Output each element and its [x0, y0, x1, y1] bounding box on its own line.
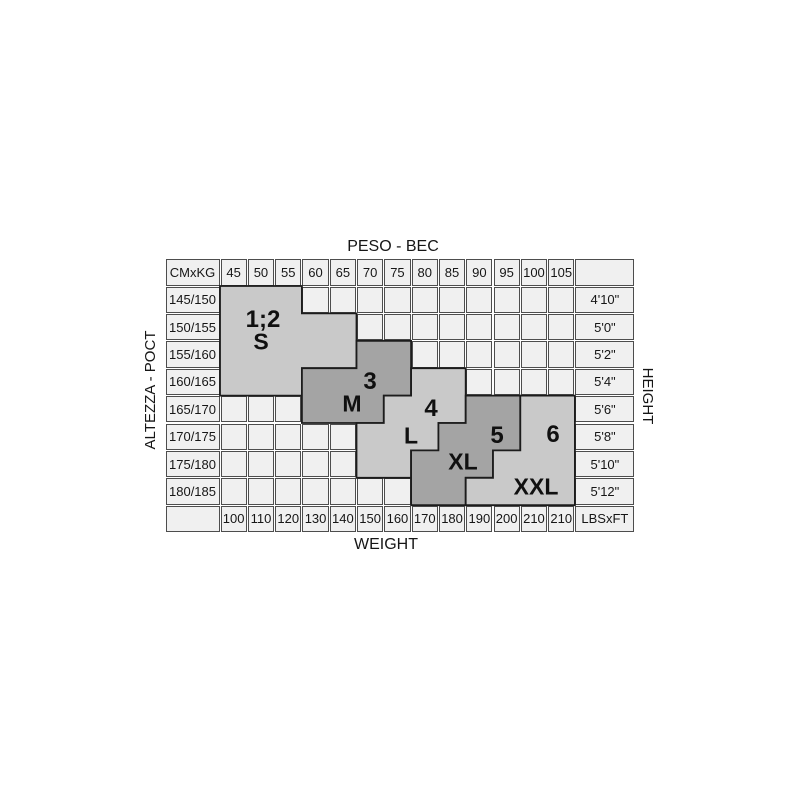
- ft-row-label: 5'0": [575, 314, 634, 340]
- lbs-footer-cell: 120: [275, 506, 301, 532]
- cm-row-label: 175/180: [166, 451, 220, 477]
- grid-cell: [330, 314, 356, 340]
- size-label-s: S: [253, 331, 268, 354]
- grid-cell: [412, 451, 438, 477]
- grid-cell: [466, 424, 492, 450]
- size-label-4: 4: [424, 397, 437, 421]
- grid-cell: [357, 451, 383, 477]
- grid-cell: [248, 424, 274, 450]
- grid-cell: [275, 341, 301, 367]
- grid-cell: [275, 424, 301, 450]
- grid-cell: [330, 451, 356, 477]
- size-label-m: M: [342, 393, 361, 416]
- lbs-footer-cell: 190: [466, 506, 492, 532]
- grid-cell: [521, 341, 547, 367]
- size-label-3: 3: [363, 370, 376, 394]
- lbs-footer-cell: 180: [439, 506, 465, 532]
- grid-cell: [330, 478, 356, 504]
- kg-header-cell: 60: [302, 259, 328, 286]
- grid-cell: [412, 369, 438, 395]
- grid-cell: [494, 341, 520, 367]
- kg-header-cell: 50: [248, 259, 274, 286]
- grid-cell: [521, 396, 547, 422]
- lbs-footer-cell: 210: [521, 506, 547, 532]
- kg-header-cell: 65: [330, 259, 356, 286]
- grid-cell: [357, 287, 383, 313]
- top-axis-title: PESO - BEC: [158, 238, 628, 256]
- grid-cell: [548, 314, 574, 340]
- size-label-l: L: [404, 425, 418, 448]
- grid-cell: [357, 341, 383, 367]
- grid-cell: [494, 287, 520, 313]
- grid-cell: [466, 369, 492, 395]
- kg-header-cell: 75: [384, 259, 410, 286]
- grid-cell: [494, 314, 520, 340]
- kg-header-cell: 70: [357, 259, 383, 286]
- lbs-footer-cell: 140: [330, 506, 356, 532]
- ft-row-label: 5'8": [575, 424, 634, 450]
- grid-cell: [248, 396, 274, 422]
- grid-cell: [384, 369, 410, 395]
- kg-header-cell: 80: [412, 259, 438, 286]
- ft-row-label: 5'2": [575, 341, 634, 367]
- grid-cell: [521, 424, 547, 450]
- grid-cell: [221, 478, 247, 504]
- grid-cell: [302, 287, 328, 313]
- grid-cell: [384, 287, 410, 313]
- grid-cell: [384, 451, 410, 477]
- kg-header-cell: 85: [439, 259, 465, 286]
- grid-cell: [302, 451, 328, 477]
- corner-kg-label: CMxKG: [166, 259, 220, 286]
- grid-cell: [466, 396, 492, 422]
- grid-cell: [357, 424, 383, 450]
- lbs-footer-cell: 130: [302, 506, 328, 532]
- kg-header-cell: 105: [548, 259, 574, 286]
- grid-cell: [221, 424, 247, 450]
- lbs-footer-cell: 110: [248, 506, 274, 532]
- grid-cell: [302, 341, 328, 367]
- kg-header-cell: 95: [494, 259, 520, 286]
- grid-cell: [330, 341, 356, 367]
- lbs-footer-cell: 160: [384, 506, 410, 532]
- grid-cell: [302, 314, 328, 340]
- grid-cell: [521, 369, 547, 395]
- grid-cell: [275, 396, 301, 422]
- grid-cell: [521, 314, 547, 340]
- grid-cell: [439, 424, 465, 450]
- grid-cell: [302, 369, 328, 395]
- grid-cell: [384, 478, 410, 504]
- size-chart-table: CMxKG4550556065707580859095100105145/150…: [165, 258, 636, 533]
- grid-cell: [412, 478, 438, 504]
- grid-cell: [439, 369, 465, 395]
- cm-row-label: 160/165: [166, 369, 220, 395]
- lbs-footer-cell: 170: [412, 506, 438, 532]
- grid-cell: [439, 287, 465, 313]
- grid-cell: [248, 478, 274, 504]
- grid-cell: [275, 369, 301, 395]
- grid-cell: [521, 287, 547, 313]
- grid-cell: [466, 478, 492, 504]
- grid-cell: [548, 396, 574, 422]
- size-label-xl: XL: [448, 451, 477, 474]
- grid-cell: [412, 287, 438, 313]
- grid-cell: [248, 369, 274, 395]
- grid-cell: [439, 341, 465, 367]
- bottom-axis-title: WEIGHT: [151, 536, 621, 554]
- lbs-footer-cell: 150: [357, 506, 383, 532]
- grid-cell: [221, 451, 247, 477]
- grid-cell: [439, 314, 465, 340]
- blank-cell: [575, 259, 634, 286]
- grid-cell: [439, 478, 465, 504]
- grid-cell: [384, 396, 410, 422]
- grid-cell: [548, 287, 574, 313]
- size-label-5: 5: [490, 424, 503, 448]
- size-label-6: 6: [546, 423, 559, 447]
- blank-cell: [166, 506, 220, 532]
- grid-cell: [221, 396, 247, 422]
- grid-cell: [248, 451, 274, 477]
- grid-cell: [548, 369, 574, 395]
- grid-cell: [221, 314, 247, 340]
- corner-lbs-label: LBSxFT: [575, 506, 634, 532]
- cm-row-label: 145/150: [166, 287, 220, 313]
- grid-cell: [275, 451, 301, 477]
- grid-cell: [357, 314, 383, 340]
- cm-row-label: 180/185: [166, 478, 220, 504]
- kg-header-cell: 90: [466, 259, 492, 286]
- lbs-footer-cell: 200: [494, 506, 520, 532]
- grid-cell: [384, 314, 410, 340]
- size-chart: PESO - BEC ALTEZZA - POCT HEIGHT WEIGHT …: [0, 0, 800, 800]
- ft-row-label: 5'10": [575, 451, 634, 477]
- grid-cell: [221, 287, 247, 313]
- cm-row-label: 165/170: [166, 396, 220, 422]
- grid-cell: [439, 396, 465, 422]
- grid-cell: [275, 478, 301, 504]
- ft-row-label: 5'6": [575, 396, 634, 422]
- grid-cell: [357, 478, 383, 504]
- cm-row-label: 150/155: [166, 314, 220, 340]
- grid-cell: [330, 287, 356, 313]
- grid-cell: [412, 341, 438, 367]
- size-label-xxl: XXL: [514, 476, 559, 499]
- grid-cell: [330, 424, 356, 450]
- grid-cell: [466, 341, 492, 367]
- grid-cell: [494, 369, 520, 395]
- kg-header-cell: 100: [521, 259, 547, 286]
- grid-cell: [384, 341, 410, 367]
- kg-header-cell: 55: [275, 259, 301, 286]
- cm-row-label: 155/160: [166, 341, 220, 367]
- grid-cell: [466, 287, 492, 313]
- grid-cell: [221, 341, 247, 367]
- grid-cell: [302, 396, 328, 422]
- grid-cell: [302, 424, 328, 450]
- kg-header-cell: 45: [221, 259, 247, 286]
- grid-cell: [548, 341, 574, 367]
- lbs-footer-cell: 210: [548, 506, 574, 532]
- ft-row-label: 5'4": [575, 369, 634, 395]
- grid-cell: [412, 314, 438, 340]
- grid-cell: [466, 314, 492, 340]
- ft-row-label: 4'10": [575, 287, 634, 313]
- cm-row-label: 170/175: [166, 424, 220, 450]
- grid-cell: [494, 396, 520, 422]
- grid-cell: [302, 478, 328, 504]
- ft-row-label: 5'12": [575, 478, 634, 504]
- lbs-footer-cell: 100: [221, 506, 247, 532]
- grid-cell: [221, 369, 247, 395]
